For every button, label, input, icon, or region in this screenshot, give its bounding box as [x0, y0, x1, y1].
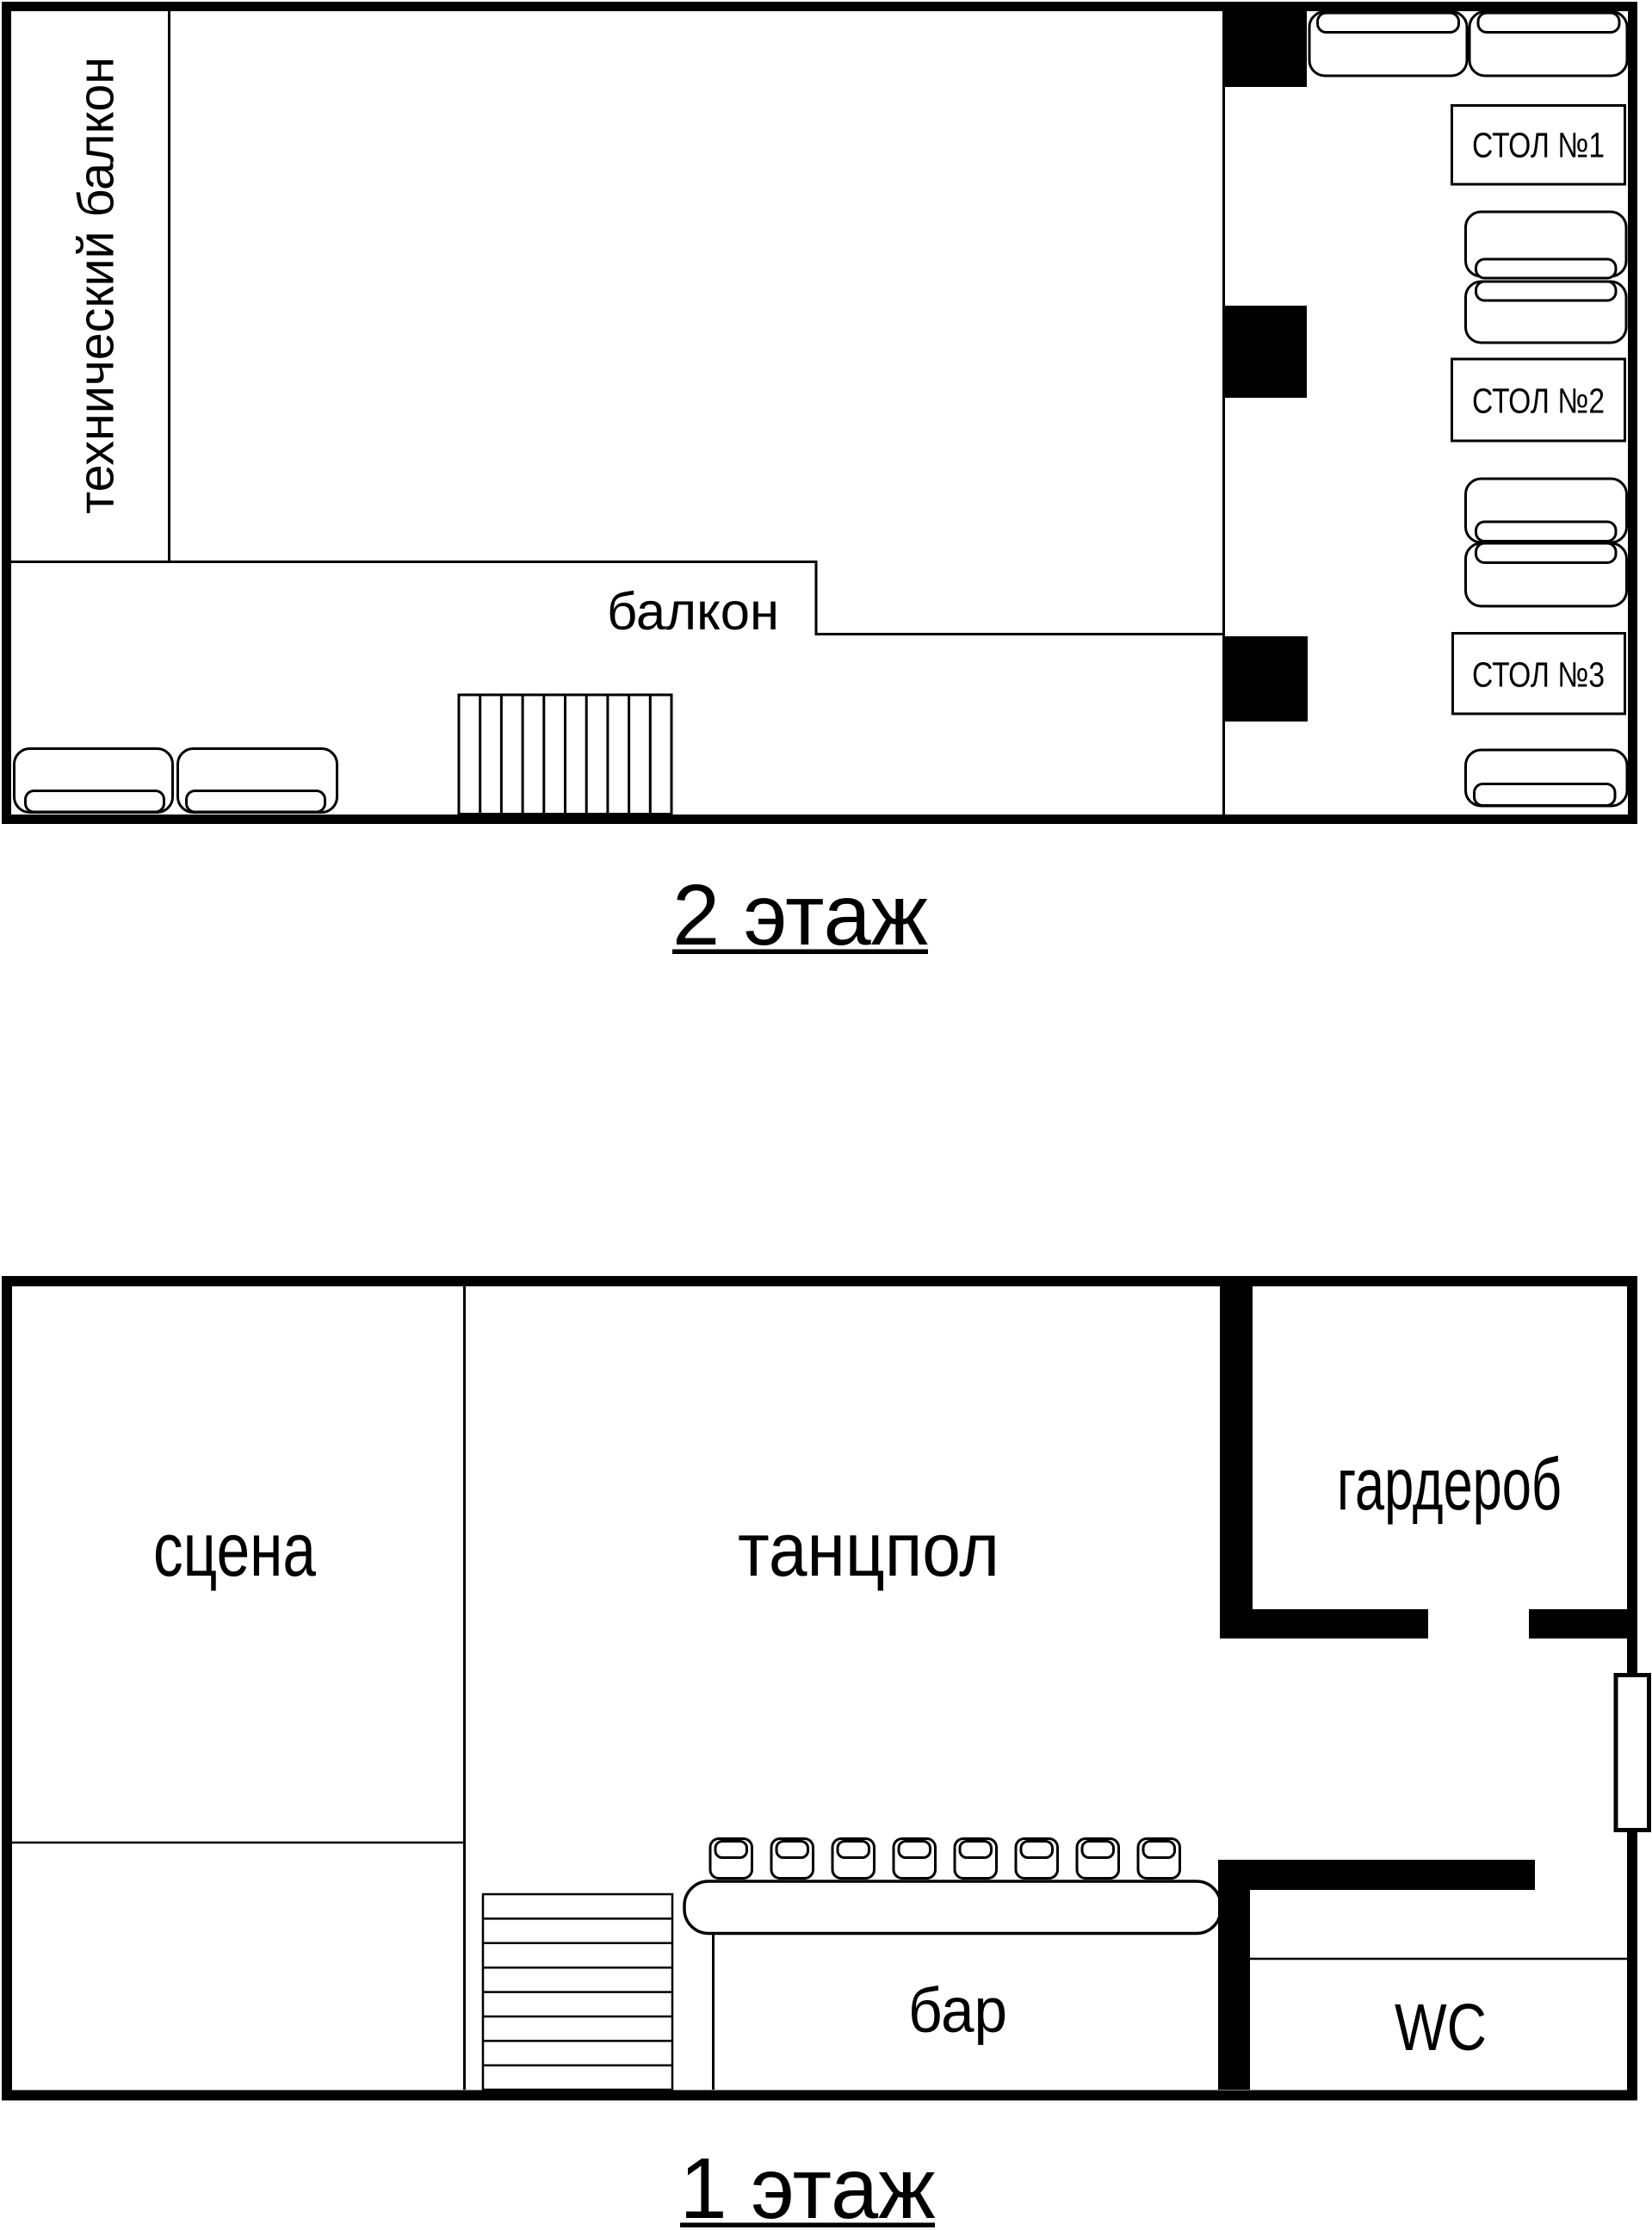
- svg-text:2 этаж: 2 этаж: [672, 867, 928, 963]
- svg-text:технический балкон: технический балкон: [69, 57, 125, 514]
- svg-text:танцпол: танцпол: [738, 1507, 999, 1592]
- svg-text:гардероб: гардероб: [1337, 1444, 1562, 1526]
- svg-text:СТОЛ №3: СТОЛ №3: [1472, 655, 1605, 695]
- svg-text:WC: WC: [1395, 1991, 1487, 2065]
- svg-text:СТОЛ №1: СТОЛ №1: [1472, 126, 1605, 165]
- svg-text:бар: бар: [908, 1976, 1007, 2046]
- svg-text:1 этаж: 1 этаж: [680, 2140, 936, 2230]
- svg-text:балкон: балкон: [607, 582, 779, 641]
- svg-text:сцена: сцена: [153, 1507, 316, 1592]
- svg-text:СТОЛ №2: СТОЛ №2: [1472, 381, 1605, 421]
